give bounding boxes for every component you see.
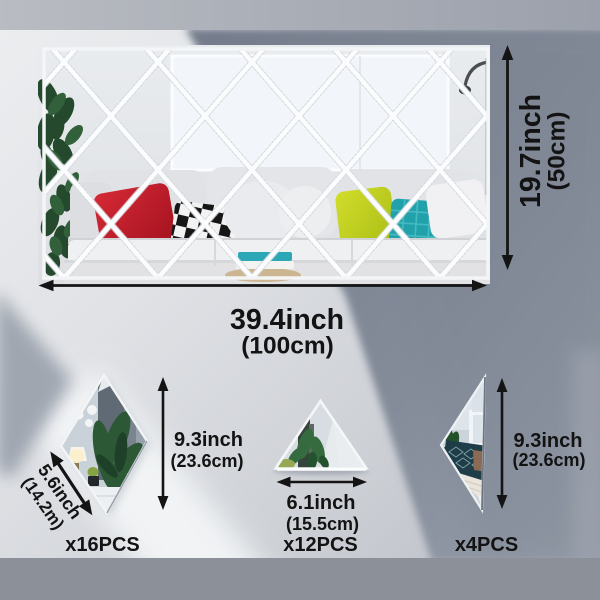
svg-text:9.3inch: 9.3inch [514, 430, 583, 452]
svg-text:6.1inch: 6.1inch [287, 492, 356, 514]
svg-text:x4PCS: x4PCS [455, 534, 518, 556]
svg-text:9.3inch: 9.3inch [174, 429, 243, 451]
svg-text:19.7inch: 19.7inch [515, 94, 547, 208]
svg-text:x12PCS: x12PCS [283, 534, 358, 556]
svg-text:39.4inch: 39.4inch [230, 304, 344, 336]
svg-text:(23.6cm): (23.6cm) [170, 451, 243, 471]
svg-text:x16PCS: x16PCS [65, 534, 140, 556]
svg-text:(50cm): (50cm) [544, 112, 571, 191]
svg-text:(23.6cm): (23.6cm) [512, 450, 585, 470]
svg-text:(15.5cm): (15.5cm) [286, 514, 359, 534]
svg-text:(100cm): (100cm) [241, 333, 334, 360]
